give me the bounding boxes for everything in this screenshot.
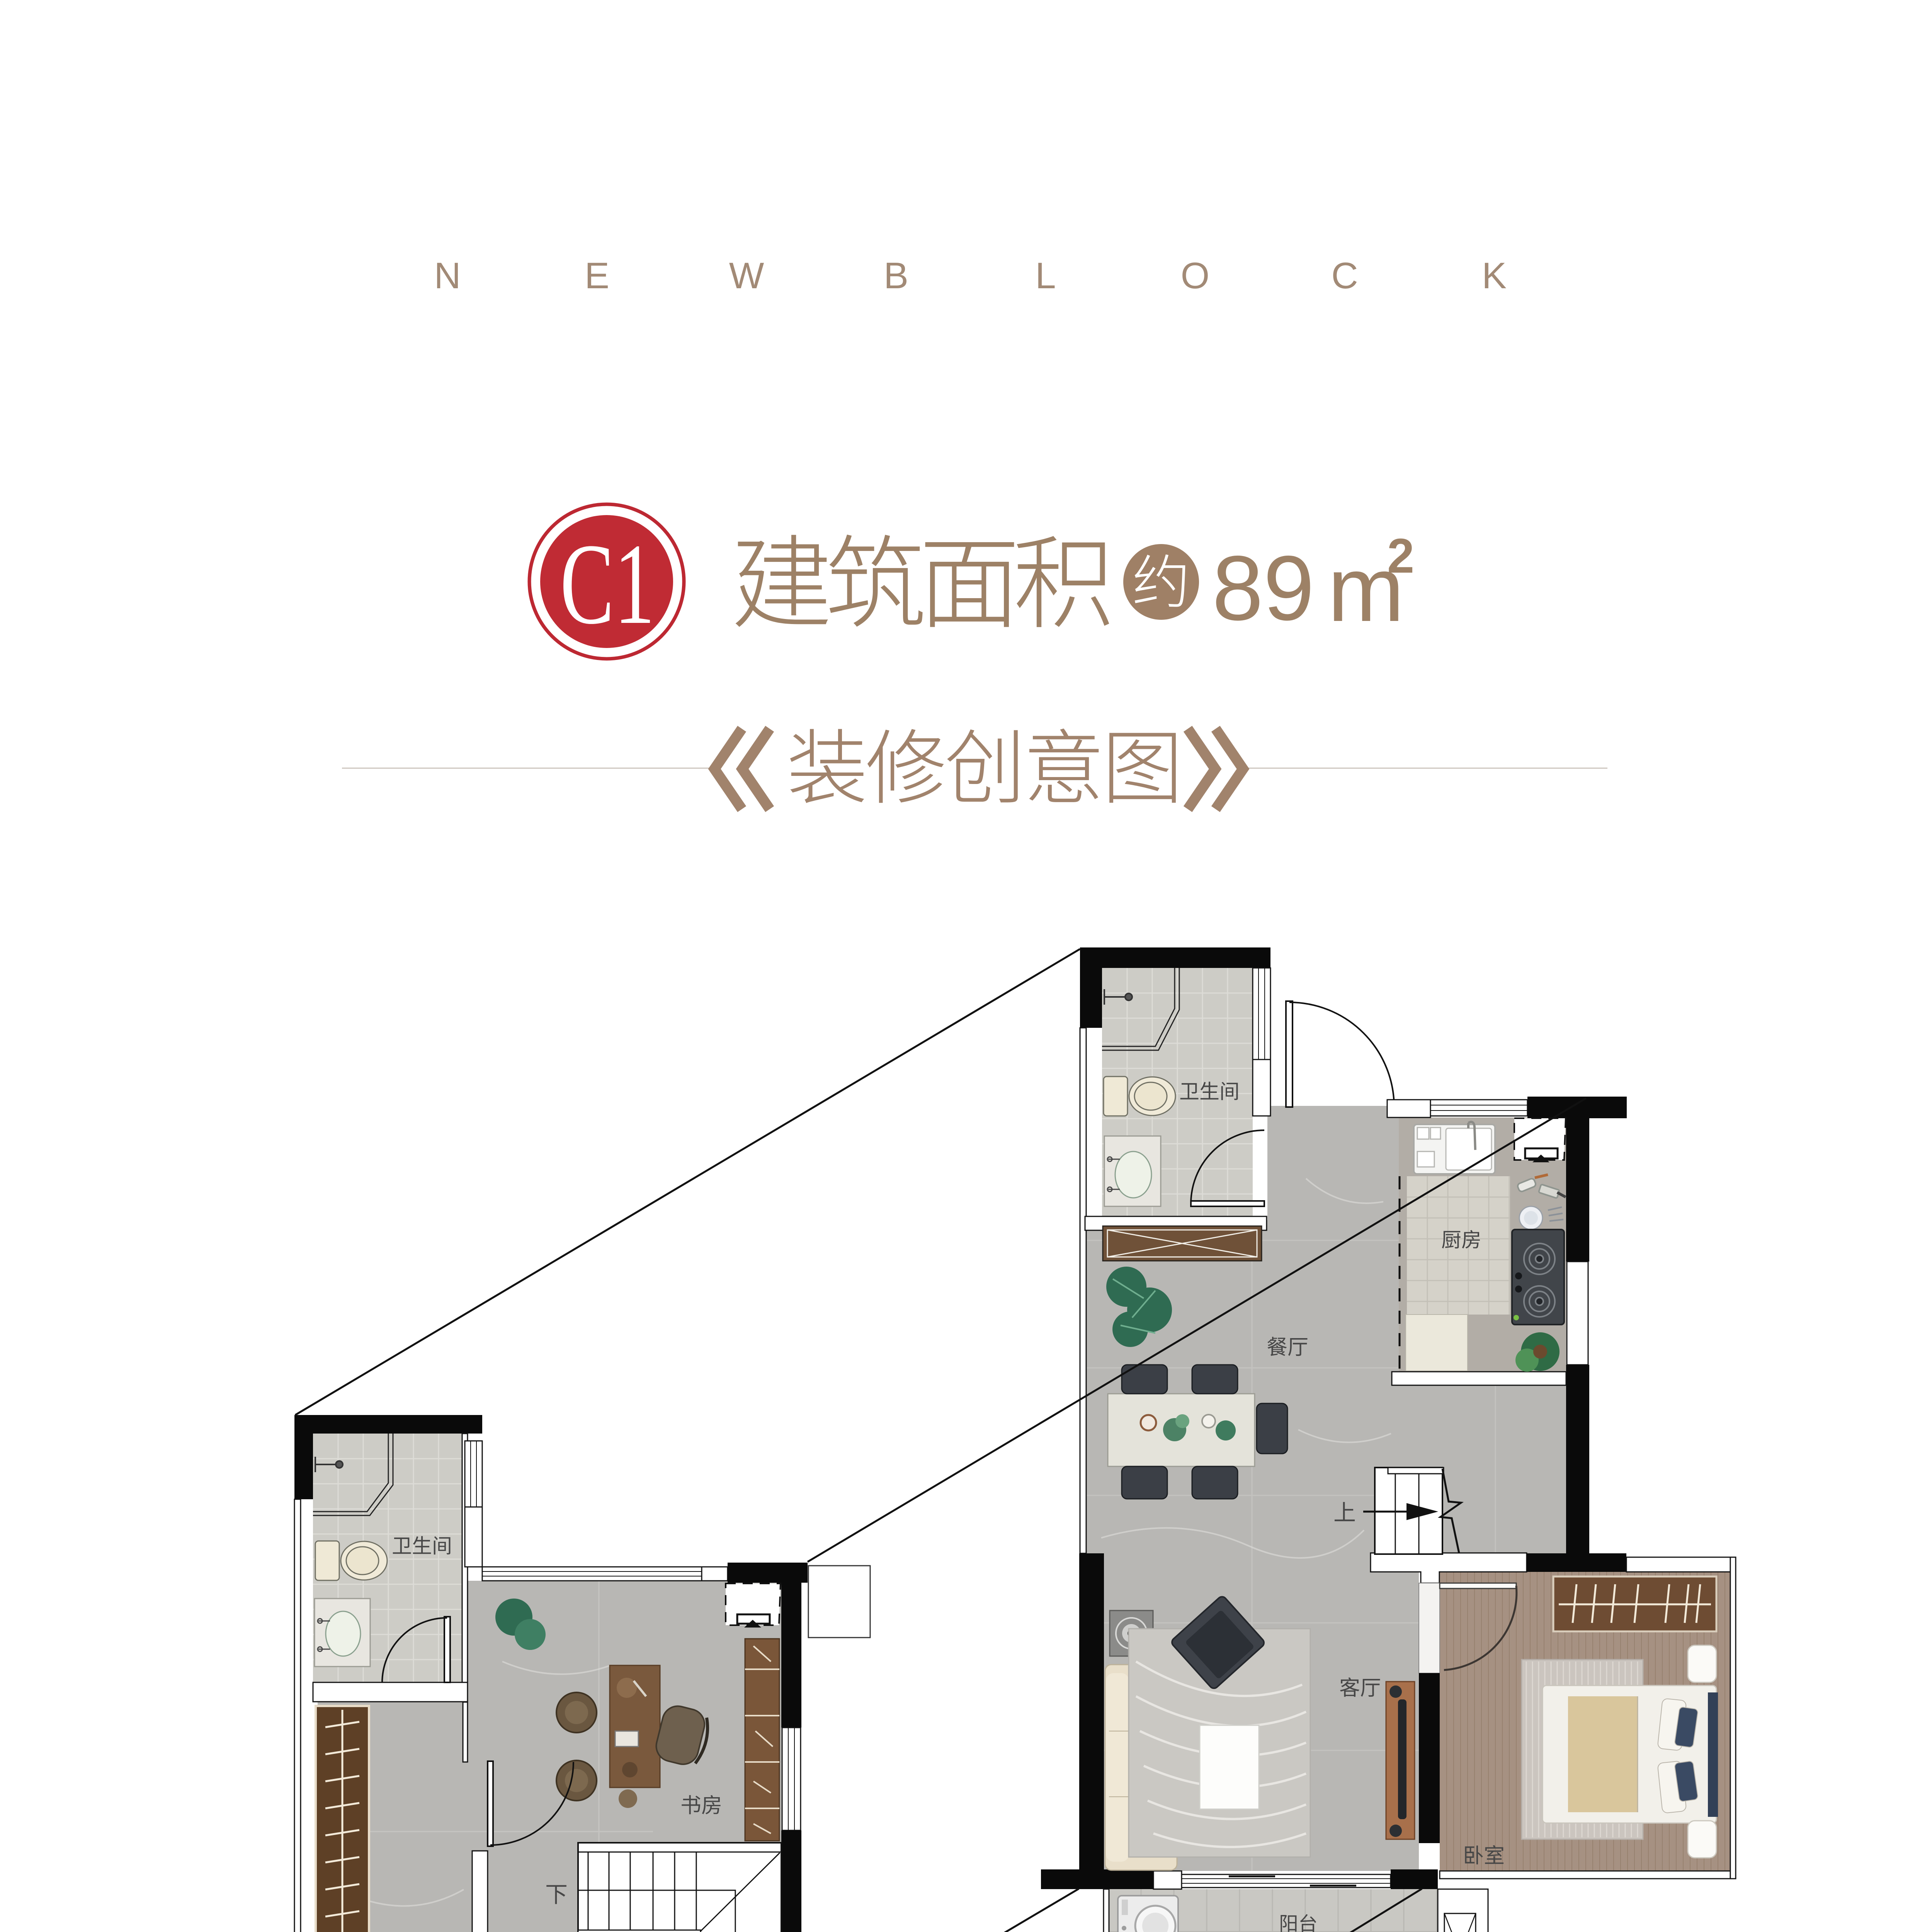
svg-text:89: 89 bbox=[1212, 537, 1315, 639]
svg-text:2: 2 bbox=[1387, 529, 1414, 583]
svg-text:O: O bbox=[1181, 255, 1210, 296]
svg-text:W: W bbox=[729, 255, 764, 296]
svg-text:E: E bbox=[585, 255, 609, 296]
svg-text:K: K bbox=[1482, 255, 1507, 296]
svg-text:C1: C1 bbox=[560, 520, 655, 648]
svg-text:C: C bbox=[1331, 255, 1358, 296]
svg-text:L: L bbox=[1035, 255, 1056, 296]
svg-text:N: N bbox=[434, 255, 461, 296]
svg-text:B: B bbox=[884, 255, 908, 296]
